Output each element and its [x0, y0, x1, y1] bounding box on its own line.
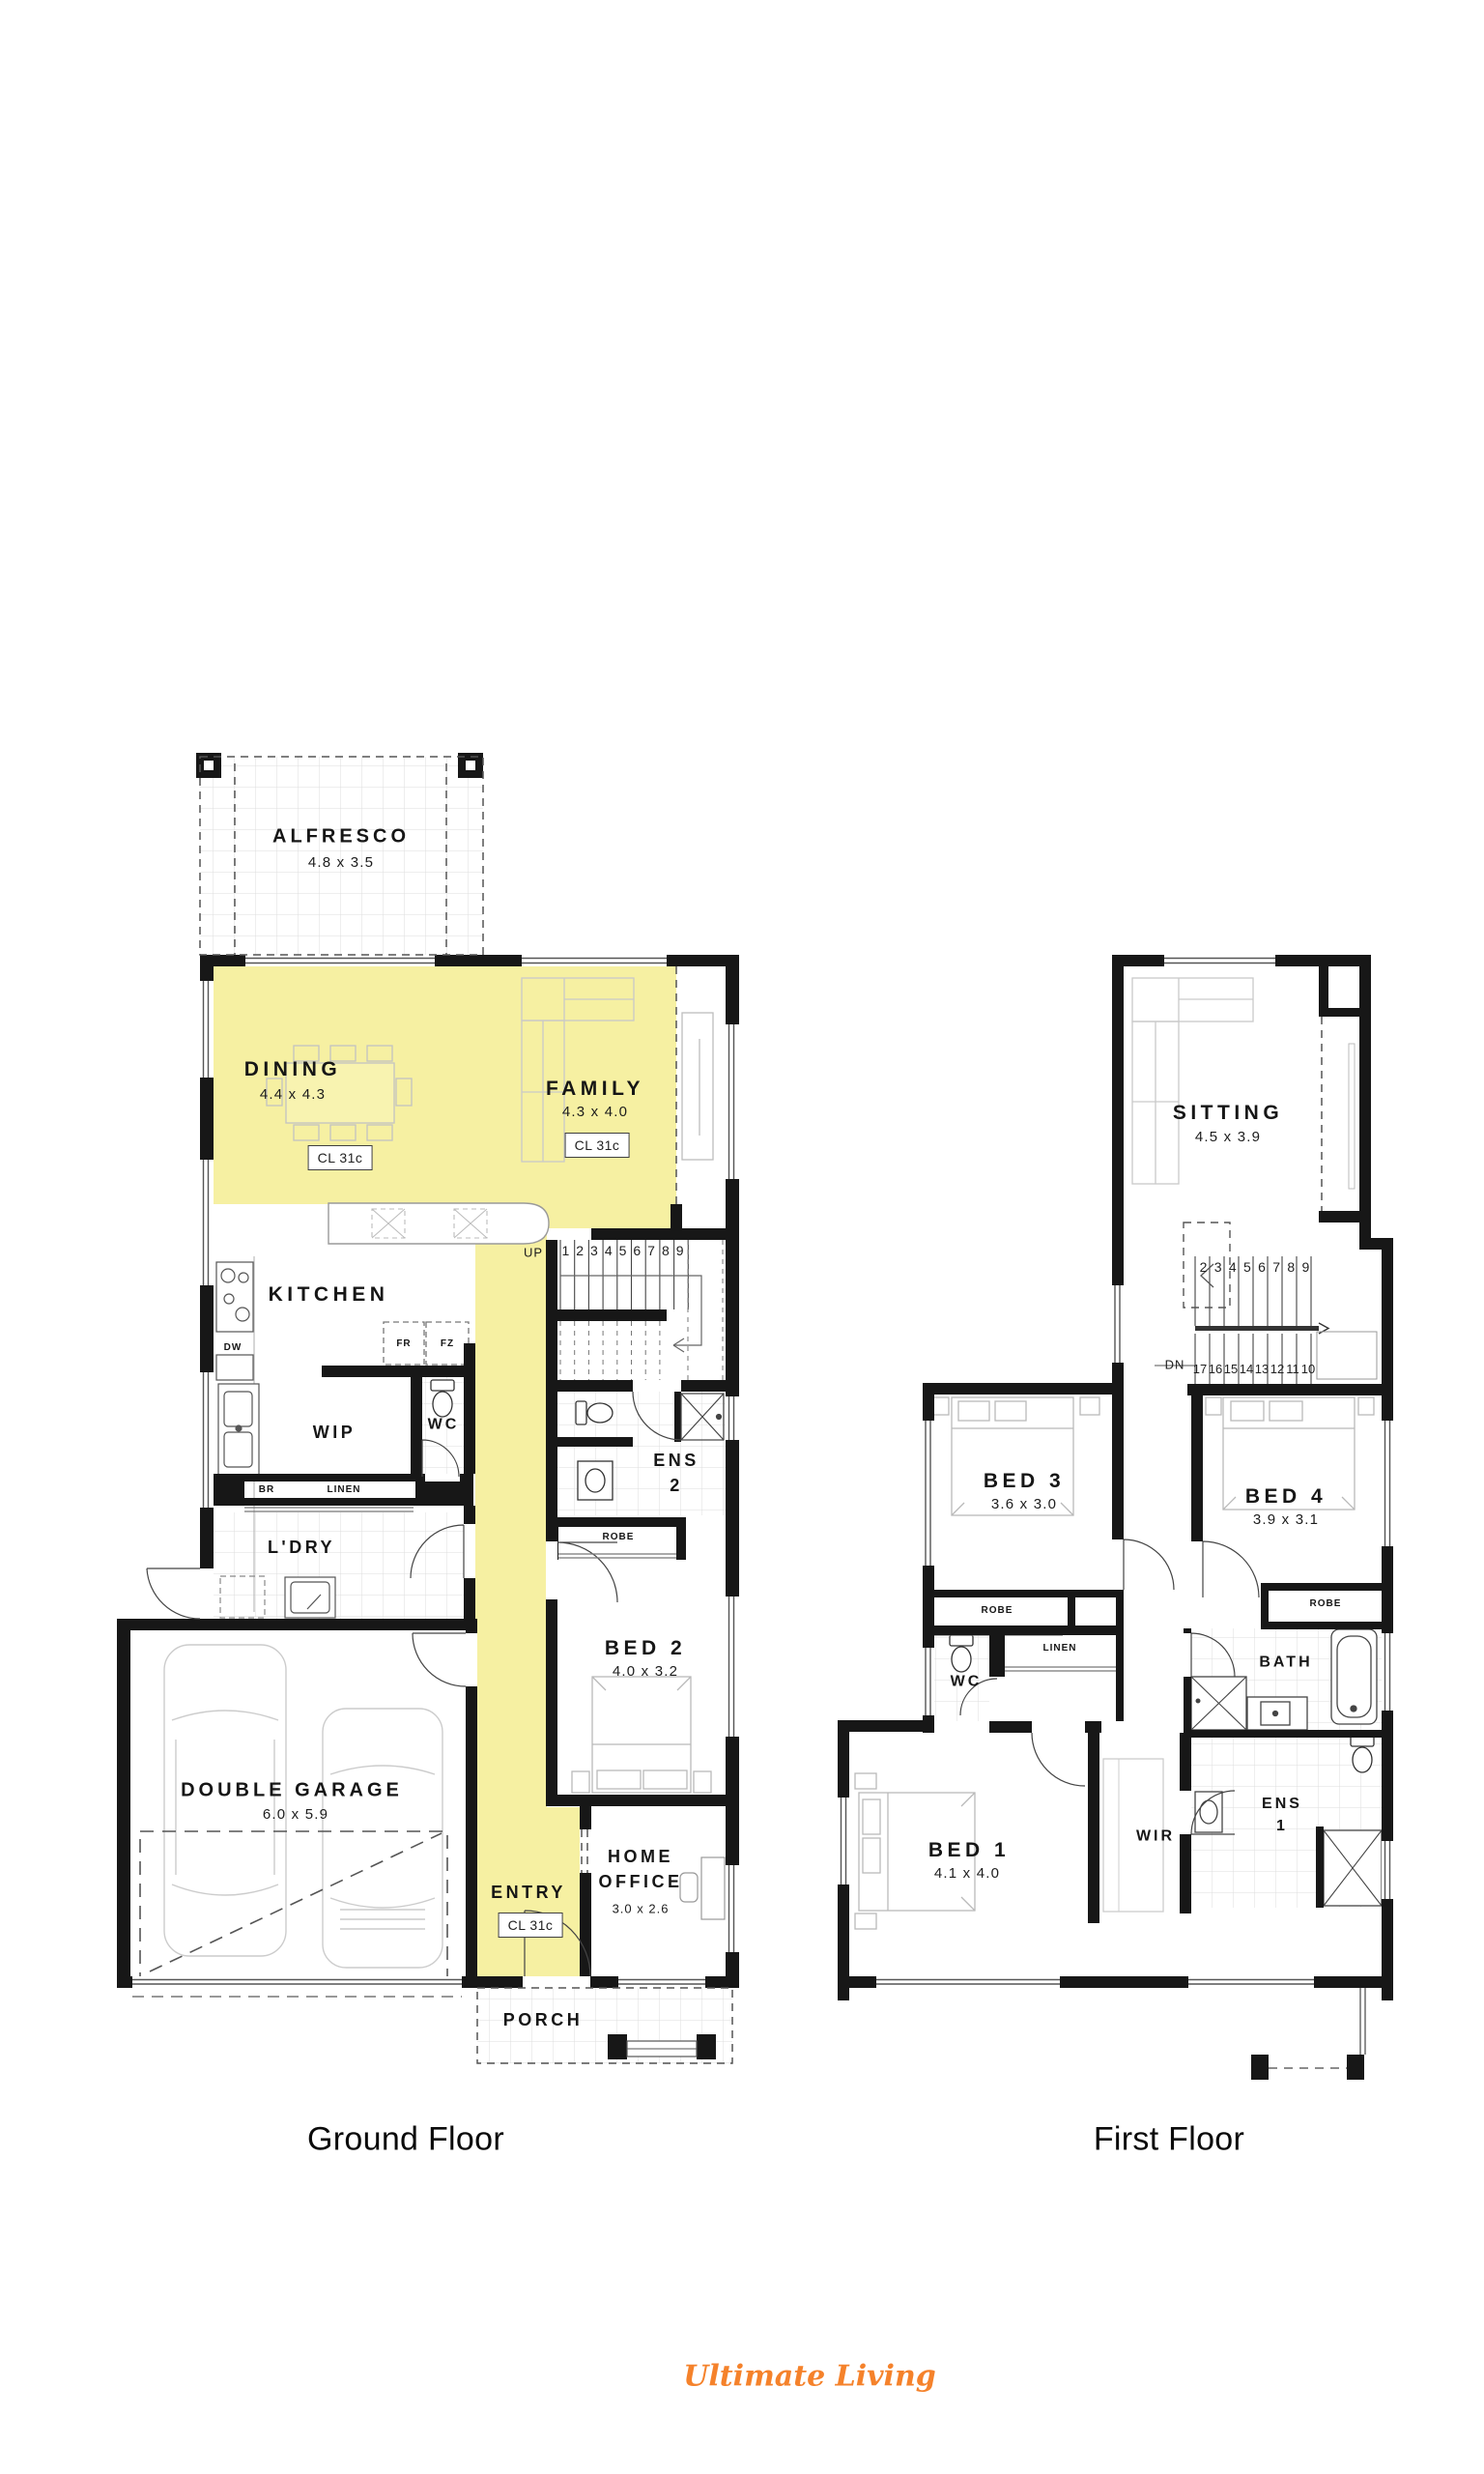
room-label-bed3: BED 3: [984, 1467, 1065, 1496]
stairs-dn-label: DN: [1165, 1357, 1185, 1375]
cupboard-label-linen-first: LINEN: [1043, 1642, 1077, 1656]
room-label-garage: DOUBLE GARAGE: [181, 1777, 403, 1805]
room-dims-family: 4.3 x 4.0: [562, 1102, 628, 1123]
floor-plan-page: ALFRESCO 4.8 x 3.5 DINING 4.4 x 4.3 CL 3…: [0, 0, 1484, 2474]
room-dims-dining: 4.4 x 4.3: [260, 1084, 326, 1106]
room-dims-garage: 6.0 x 5.9: [263, 1804, 328, 1826]
ceiling-badge-entry: CL 31c: [499, 1913, 563, 1938]
room-label-ens1: ENS 1: [1262, 1793, 1302, 1837]
room-label-home-office: HOME OFFICE: [599, 1844, 683, 1894]
appliance-label-fridge: FR: [396, 1338, 411, 1352]
room-label-ens2: ENS 2: [653, 1448, 699, 1498]
room-label-bath: BATH: [1259, 1651, 1312, 1673]
room-label-bed2: BED 2: [605, 1634, 686, 1663]
room-label-wc-first: WC: [951, 1670, 983, 1692]
room-dims-home-office: 3.0 x 2.6: [613, 1901, 670, 1919]
room-label-family: FAMILY: [546, 1075, 644, 1104]
appliance-label-freezer: FZ: [441, 1338, 454, 1352]
robe-label-bed4: ROBE: [1310, 1597, 1342, 1612]
room-label-dining: DINING: [244, 1055, 342, 1084]
room-dims-bed4: 3.9 x 3.1: [1253, 1510, 1319, 1531]
room-label-ldry: L'DRY: [268, 1535, 335, 1560]
room-label-sitting: SITTING: [1173, 1099, 1283, 1128]
room-label-wip: WIP: [313, 1420, 357, 1445]
cupboard-label-linen-ground: LINEN: [328, 1483, 361, 1498]
room-dims-bed1: 4.1 x 4.0: [934, 1863, 1000, 1884]
ceiling-badge-dining: CL 31c: [308, 1145, 373, 1170]
room-label-entry: ENTRY: [491, 1880, 566, 1905]
room-dims-bed3: 3.6 x 3.0: [991, 1494, 1057, 1515]
caption-first-floor: First Floor: [1094, 2115, 1244, 2163]
caption-ground-floor: Ground Floor: [307, 2115, 504, 2163]
floor-plan-drawing: [0, 0, 1484, 2474]
stairs-tread-numbers-upper: 23456789: [1196, 1259, 1313, 1275]
stairs-tread-numbers-ground: 123456789: [558, 1243, 687, 1258]
brand-logo: Ultimate Living: [683, 2355, 936, 2398]
robe-label-ground: ROBE: [603, 1531, 635, 1545]
room-dims-bed2: 4.0 x 3.2: [613, 1661, 678, 1683]
room-label-porch: PORCH: [503, 2007, 584, 2032]
room-label-alfresco: ALFRESCO: [272, 823, 410, 851]
stairs-up-label: UP: [524, 1245, 543, 1263]
room-dims-sitting: 4.5 x 3.9: [1195, 1127, 1261, 1148]
ceiling-badge-family: CL 31c: [565, 1133, 630, 1158]
robe-label-bed3: ROBE: [982, 1604, 1013, 1619]
appliance-label-dishwasher: DW: [224, 1341, 243, 1356]
stairs-tread-numbers-lower: 1716151413121110: [1192, 1362, 1316, 1376]
room-dims-alfresco: 4.8 x 3.5: [308, 852, 374, 874]
cupboard-label-br: BR: [259, 1483, 274, 1498]
room-label-wir: WIR: [1136, 1825, 1175, 1847]
room-label-bed4: BED 4: [1245, 1482, 1327, 1511]
room-label-kitchen: KITCHEN: [269, 1280, 389, 1309]
room-label-bed1: BED 1: [928, 1836, 1010, 1865]
room-label-wc-ground: WC: [428, 1413, 460, 1435]
